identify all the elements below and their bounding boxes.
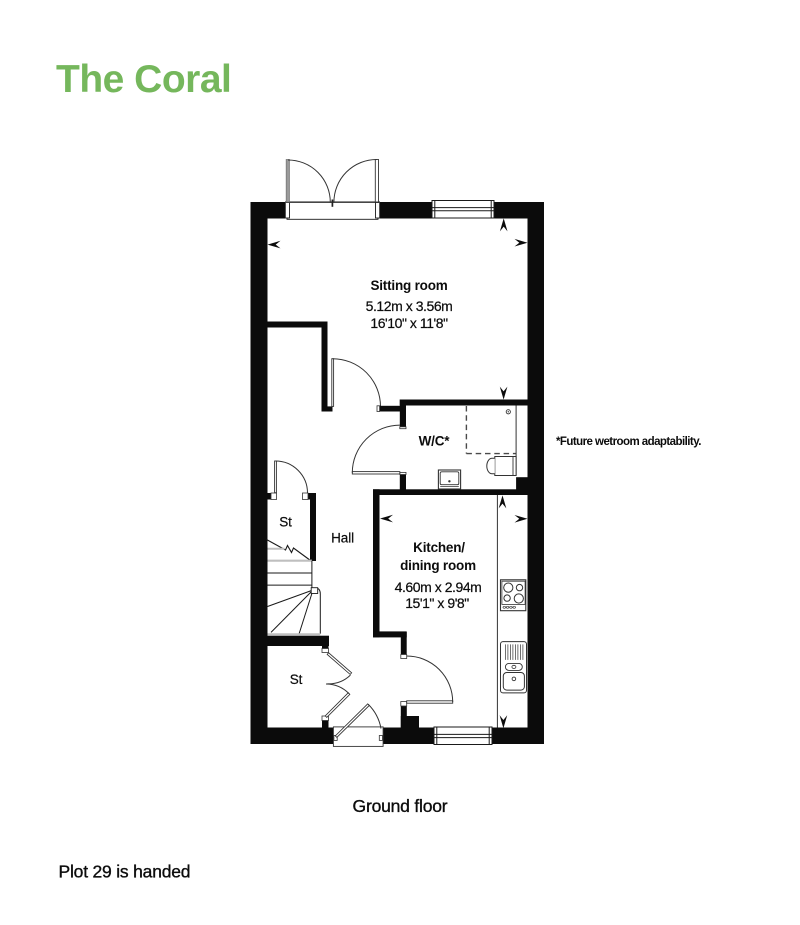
svg-text:St: St [279, 515, 292, 530]
svg-text:Sitting room: Sitting room [370, 278, 447, 293]
svg-text:5.12m x 3.56m: 5.12m x 3.56m [366, 298, 453, 314]
svg-text:dining room: dining room [400, 558, 476, 573]
svg-text:15'1" x 9'8": 15'1" x 9'8" [405, 595, 469, 611]
svg-text:St: St [290, 672, 303, 687]
svg-text:16'10" x 11'8": 16'10" x 11'8" [370, 315, 448, 331]
svg-text:The Coral: The Coral [56, 58, 231, 101]
svg-text:*Future wetroom adaptability.: *Future wetroom adaptability. [556, 436, 701, 448]
svg-text:Plot 29 is handed: Plot 29 is handed [59, 862, 191, 882]
svg-text:Kitchen/: Kitchen/ [413, 540, 465, 555]
svg-text:Hall: Hall [331, 531, 354, 546]
svg-text:4.60m x 2.94m: 4.60m x 2.94m [395, 579, 482, 595]
svg-text:W/C*: W/C* [419, 434, 451, 449]
svg-text:Ground floor: Ground floor [353, 796, 448, 816]
